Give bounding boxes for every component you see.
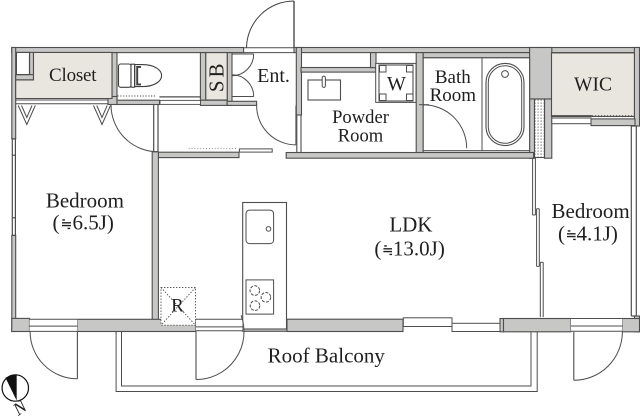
svg-text:SB: SB bbox=[205, 60, 229, 92]
svg-text:Room: Room bbox=[430, 85, 477, 106]
svg-text:WIC: WIC bbox=[574, 75, 612, 96]
svg-text:Roof Balcony: Roof Balcony bbox=[268, 343, 386, 367]
svg-text:Bedroom: Bedroom bbox=[552, 199, 630, 223]
svg-text:W: W bbox=[387, 73, 406, 95]
svg-text:Closet: Closet bbox=[49, 65, 97, 86]
svg-text:Room: Room bbox=[338, 126, 384, 147]
svg-text:Ent.: Ent. bbox=[257, 65, 290, 87]
svg-text:R: R bbox=[171, 296, 184, 317]
svg-text:LDK: LDK bbox=[389, 213, 432, 237]
svg-text:Bedroom: Bedroom bbox=[46, 189, 124, 213]
